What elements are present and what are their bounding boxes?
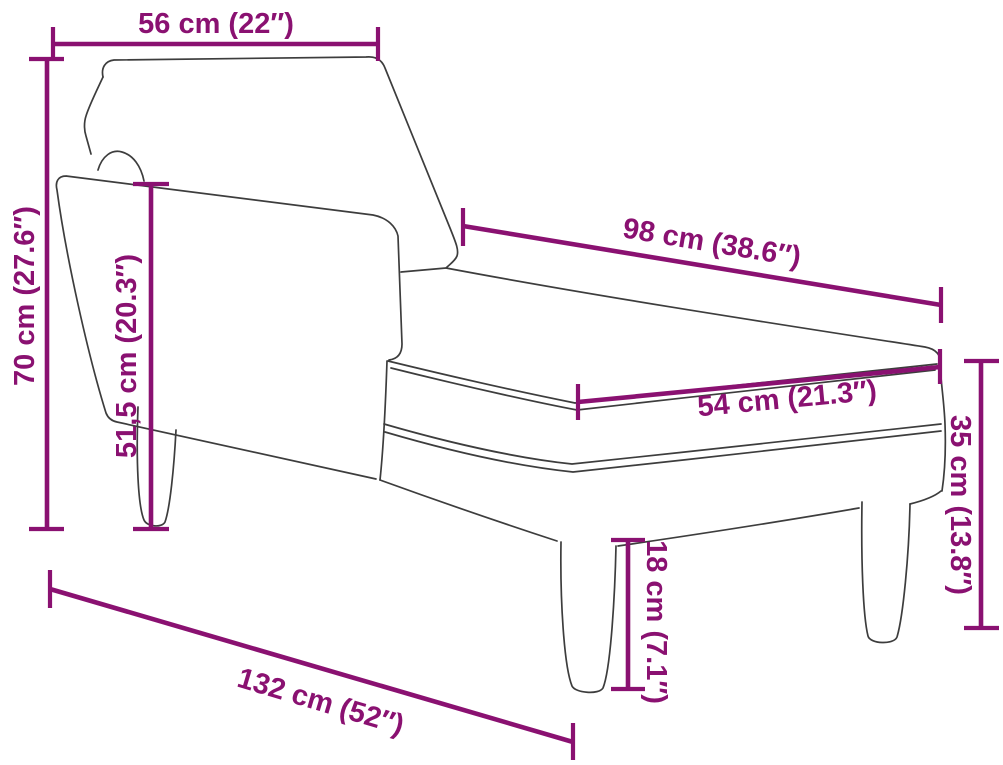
dim-backrest-height: 51,5 cm (20.3″) (111, 184, 169, 529)
dimension-diagram: 56 cm (22″) 70 cm (27.6″) 51,5 cm (20.3″… (0, 0, 1003, 765)
cushion-bottom-piping (384, 424, 941, 472)
seat-left-edge (380, 361, 387, 480)
dim-seat-length: 98 cm (38.6″) (463, 208, 941, 323)
back-left-leg (137, 407, 176, 526)
dim-side-height: 35 cm (13.8″) (944, 361, 999, 628)
dim-side-height-label: 35 cm (13.8″) (944, 415, 976, 595)
dim-seat-length-label: 98 cm (38.6″) (620, 213, 803, 274)
dim-seat-width: 54 cm (21.3″) (578, 349, 940, 423)
dim-total-length-line (50, 589, 573, 742)
dimension-annotations: 56 cm (22″) 70 cm (27.6″) 51,5 cm (20.3″… (9, 8, 999, 760)
dim-leg-height: 18 cm (7.1″) (611, 540, 672, 704)
dim-total-length-label: 132 cm (52″) (234, 662, 408, 742)
dim-top-width-label: 56 cm (22″) (138, 8, 294, 40)
dim-total-height: 70 cm (27.6″) (9, 59, 64, 529)
dim-top-width: 56 cm (22″) (53, 8, 378, 61)
front-corner-leg (561, 542, 616, 692)
dim-leg-height-label: 18 cm (7.1″) (640, 540, 672, 704)
dim-total-height-label: 70 cm (27.6″) (9, 206, 41, 386)
dim-total-length: 132 cm (52″) (50, 570, 573, 760)
armrest-outline (56, 176, 402, 479)
base-bottom-rail (380, 480, 941, 546)
side-panel-dome (98, 151, 144, 181)
chaise-drawing (56, 57, 945, 693)
dim-backrest-height-label: 51,5 cm (20.3″) (111, 254, 143, 458)
backrest-cushion-outline (102, 57, 457, 272)
chaise-dimension-svg: 56 cm (22″) 70 cm (27.6″) 51,5 cm (20.3″… (0, 0, 1003, 765)
right-leg (862, 502, 910, 643)
backrest-left-edge (85, 77, 104, 154)
